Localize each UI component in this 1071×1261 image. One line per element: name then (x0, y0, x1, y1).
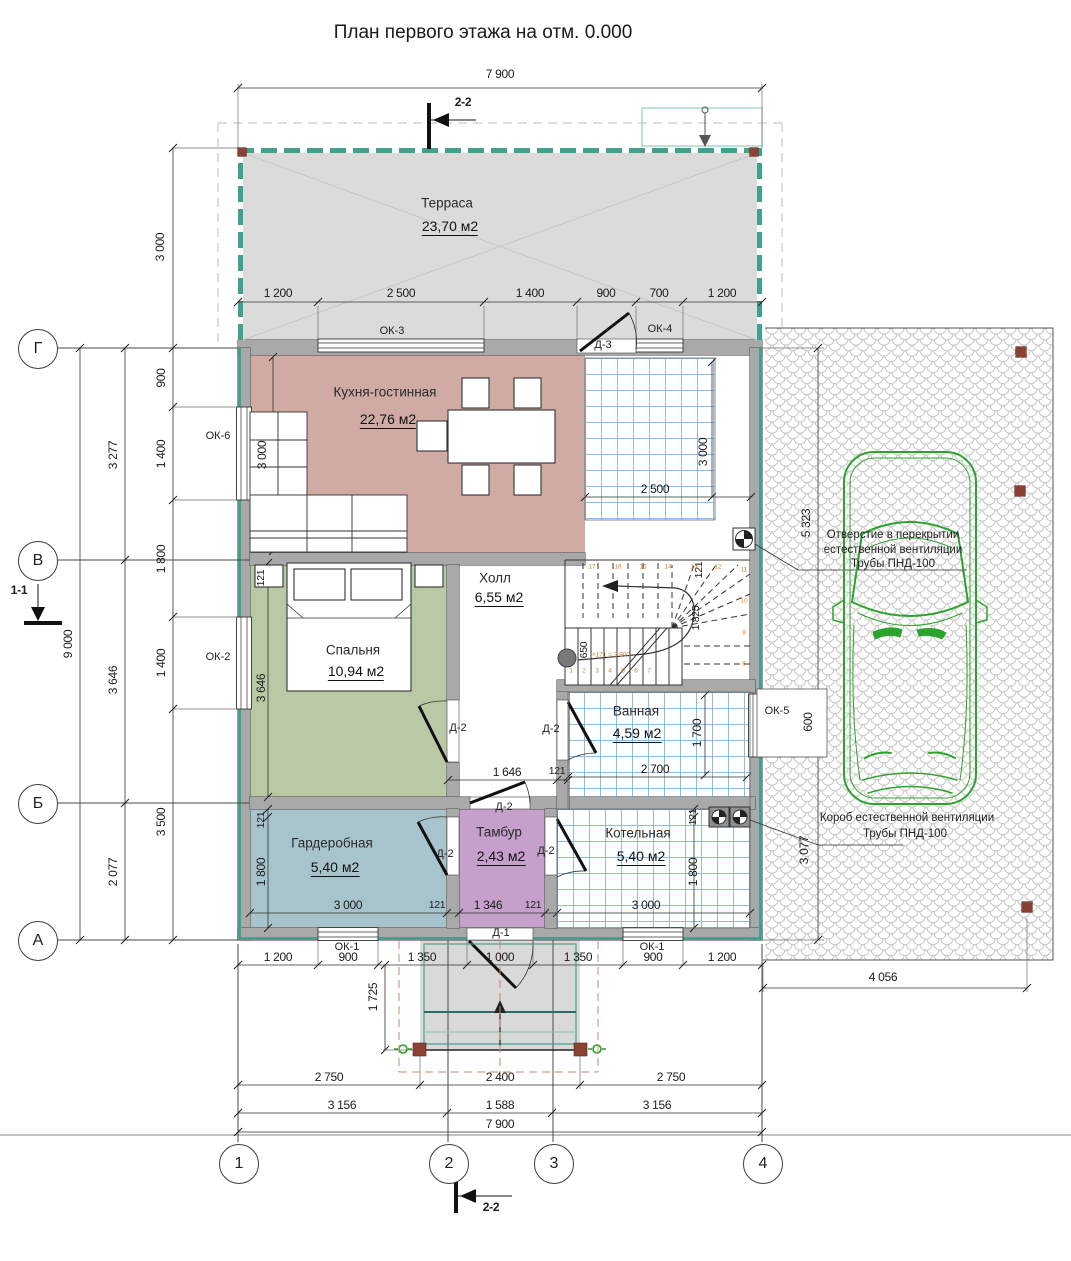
dim-label: 3 000 (696, 438, 710, 467)
window-label: ОК-6 (206, 430, 231, 442)
terrace-roof-diagonals (243, 153, 757, 340)
dim-label: 121 (429, 899, 446, 911)
dim-label: 1 400 (516, 286, 545, 300)
dim-label: 1 200 (264, 286, 293, 300)
room-area-boiler: 5,40 м2 (617, 848, 666, 866)
dim-label: 2 700 (641, 762, 670, 776)
plan-linework (0, 0, 1071, 1261)
stair-number: 16 (614, 564, 621, 571)
axis-label: 3 (550, 1155, 559, 1173)
axis-label: 2 (445, 1155, 454, 1173)
axis-row-g: Г (18, 329, 58, 369)
dim-label: 2 750 (315, 1070, 344, 1084)
dim-label: 4 056 (869, 970, 898, 984)
room-name-kitchen: Кухня-гостинная (334, 385, 437, 400)
door-label: Д-2 (495, 801, 512, 813)
dim-label: 3 156 (643, 1098, 672, 1112)
dim-label: 1 725 (366, 983, 380, 1012)
axis-label: Б (33, 795, 44, 813)
room-name-terrace: Терраса (421, 196, 473, 211)
stair-number: 4 (608, 668, 612, 675)
axis-col-3: 3 (534, 1144, 574, 1184)
stair-number: 10 (740, 598, 747, 605)
window-label: ОК-4 (648, 323, 673, 335)
window-label: ОК-2 (206, 651, 231, 663)
driveway-marker (1015, 486, 1025, 496)
car-icon (833, 452, 987, 804)
dim-label: 600 (801, 712, 815, 731)
section-mark-label: 1-1 (11, 583, 27, 597)
ok5-label-box (757, 689, 827, 757)
dim-label: 650 (578, 642, 590, 659)
stair-number: 5 (621, 668, 625, 675)
stair-number: 11 (741, 567, 748, 574)
dim-label: 1 400 (154, 440, 168, 469)
dim-label: 2 077 (106, 858, 120, 887)
dim-label: 1 350 (564, 950, 593, 964)
dim-label: 121 (525, 899, 542, 911)
dim-label: 3 000 (632, 898, 661, 912)
stair-number: 13 (690, 564, 697, 571)
stair-number: 2 (582, 668, 586, 675)
axis-col-2: 2 (429, 1144, 469, 1184)
dim-label: 3 646 (254, 674, 268, 703)
annotation-vent-duct: Трубы ПНД-100 (863, 828, 947, 840)
wiper-icon (873, 628, 902, 639)
axis-row-a: А (18, 921, 58, 961)
dim-label: 3 500 (154, 808, 168, 837)
dim-label: 3 000 (334, 898, 363, 912)
vent-duct-symbol (709, 807, 750, 827)
room-area-terrace: 23,70 м2 (422, 218, 478, 236)
dining-table-icon (417, 378, 555, 495)
stair-number: 12 (714, 564, 721, 571)
stair-number: 3 (595, 668, 599, 675)
dim-label: 900 (154, 368, 168, 387)
stair-number: 8 (742, 661, 746, 668)
door-label: Д-2 (449, 722, 466, 734)
axis-row-v: В (18, 541, 58, 581)
dim-label: 3 646 (106, 666, 120, 695)
mirror-icon (833, 600, 844, 623)
dim-label: 900 (596, 286, 615, 300)
page-title: План первого этажа на отм. 0.000 (334, 22, 633, 44)
dim-label: 2 500 (641, 482, 670, 496)
room-area-hall: 6,55 м2 (475, 589, 524, 607)
stair-newel-post (558, 649, 576, 667)
stair-number: 14 (664, 564, 671, 571)
dim-label: 7 900 (486, 67, 515, 81)
dim-label: 121 (255, 812, 267, 829)
dim-label: 1 350 (408, 950, 437, 964)
room-area-bedroom: 10,94 м2 (328, 663, 384, 681)
dim-label: 1 200 (708, 286, 737, 300)
dim-label: 1 646 (493, 765, 522, 779)
room-name-boiler: Котельная (605, 826, 670, 841)
staircase (558, 560, 750, 685)
mirror-icon (976, 600, 987, 623)
door-label: Д-3 (594, 339, 611, 351)
dim-label: 1 800 (686, 858, 700, 887)
axis-label: В (33, 552, 44, 570)
annotation-vent-hole: естественной вентиляции (824, 544, 963, 556)
dim-label: 1 800 (254, 858, 268, 887)
dim-label: 7 900 (486, 1117, 515, 1131)
dim-label: 2 750 (657, 1070, 686, 1084)
dim-label: 3 000 (255, 441, 269, 470)
kitchen-counter-icon (250, 412, 407, 552)
dim-label: 3 077 (797, 836, 811, 865)
door-label: Д-2 (436, 848, 453, 860)
stair-number: 17 (588, 564, 595, 571)
axis-col-1: 1 (219, 1144, 259, 1184)
room-name-wardrobe: Гардеробная (291, 836, 373, 851)
dim-label: 121 (549, 765, 566, 777)
dim-label: 2 500 (387, 286, 416, 300)
dim-label: 9 000 (61, 630, 75, 659)
axis-row-b: Б (18, 784, 58, 824)
annotation-vent-hole: Отверстие в перекрытии (827, 529, 960, 541)
driveway-marker (1016, 347, 1026, 357)
vent-hole-symbol (733, 528, 755, 550)
dim-label: 1 200 (708, 950, 737, 964)
annotation-vent-duct: Короб естественной вентиляции (820, 812, 994, 824)
dim-label: 1 346 (474, 898, 503, 912)
axis-label: 1 (235, 1155, 244, 1173)
floor-plan-drawing: План первого этажа на отм. 0.000 Г В Б А… (0, 0, 1071, 1261)
door-label: Д-2 (537, 845, 554, 857)
dim-label: 3 156 (328, 1098, 357, 1112)
driveway-marker (1022, 902, 1032, 912)
stair-number: 6 (634, 668, 638, 675)
stair-rise-note: ×171 = 2 900 (592, 652, 630, 659)
roof-overhang-dashed (218, 123, 782, 348)
stair-number: 1 (569, 668, 573, 675)
room-area-wardrobe: 5,40 м2 (311, 859, 360, 877)
axis-label: А (33, 932, 44, 950)
door-label: Д-2 (542, 723, 559, 735)
annotation-vent-hole: Трубы ПНД-100 (851, 558, 935, 570)
dim-label: 1 000 (486, 950, 515, 964)
window-label: ОК-3 (380, 325, 405, 337)
room-name-bedroom: Спальня (326, 643, 380, 658)
wiper-icon (917, 629, 946, 639)
section-mark-label: 2-2 (455, 95, 471, 109)
dim-label: 1 825 (690, 606, 702, 631)
drain-arrow-icon (699, 107, 711, 147)
terrace-corner-post (238, 148, 246, 156)
axis-col-4: 4 (743, 1144, 783, 1184)
room-area-bath: 4,59 м2 (613, 725, 662, 743)
dim-label: 2 400 (486, 1070, 515, 1084)
dim-label: 5 323 (799, 509, 813, 538)
dim-label: 3 000 (153, 233, 167, 262)
dim-label: 1 800 (154, 545, 168, 574)
dim-label: 700 (649, 286, 668, 300)
dim-label: 1 400 (154, 649, 168, 678)
driveway-border (763, 328, 1053, 960)
dim-label: 121 (255, 570, 267, 587)
axis-label: Г (34, 340, 43, 358)
room-area-kitchen: 22,76 м2 (360, 411, 416, 429)
dim-label: 900 (643, 950, 662, 964)
stair-number: 9 (742, 630, 746, 637)
terrace-corner-post (750, 148, 758, 156)
room-name-hall: Холл (479, 571, 511, 586)
section-mark-label: 2-2 (483, 1200, 499, 1214)
stair-number: 7 (647, 668, 651, 675)
axis-label: 4 (759, 1155, 768, 1173)
door-label: Д-1 (492, 927, 509, 939)
dim-label: 1 700 (690, 719, 704, 748)
dim-label: 3 277 (106, 441, 120, 470)
room-area-tambour: 2,43 м2 (477, 848, 526, 866)
dim-label: 900 (338, 950, 357, 964)
dim-label: 1 588 (486, 1098, 515, 1112)
dim-label: 121 (687, 809, 699, 826)
window-label: ОК-5 (765, 705, 790, 717)
room-name-bath: Ванная (613, 704, 659, 719)
stair-number: 15 (639, 564, 646, 571)
room-name-tambour: Тамбур (476, 825, 522, 840)
dim-label: 1 200 (264, 950, 293, 964)
